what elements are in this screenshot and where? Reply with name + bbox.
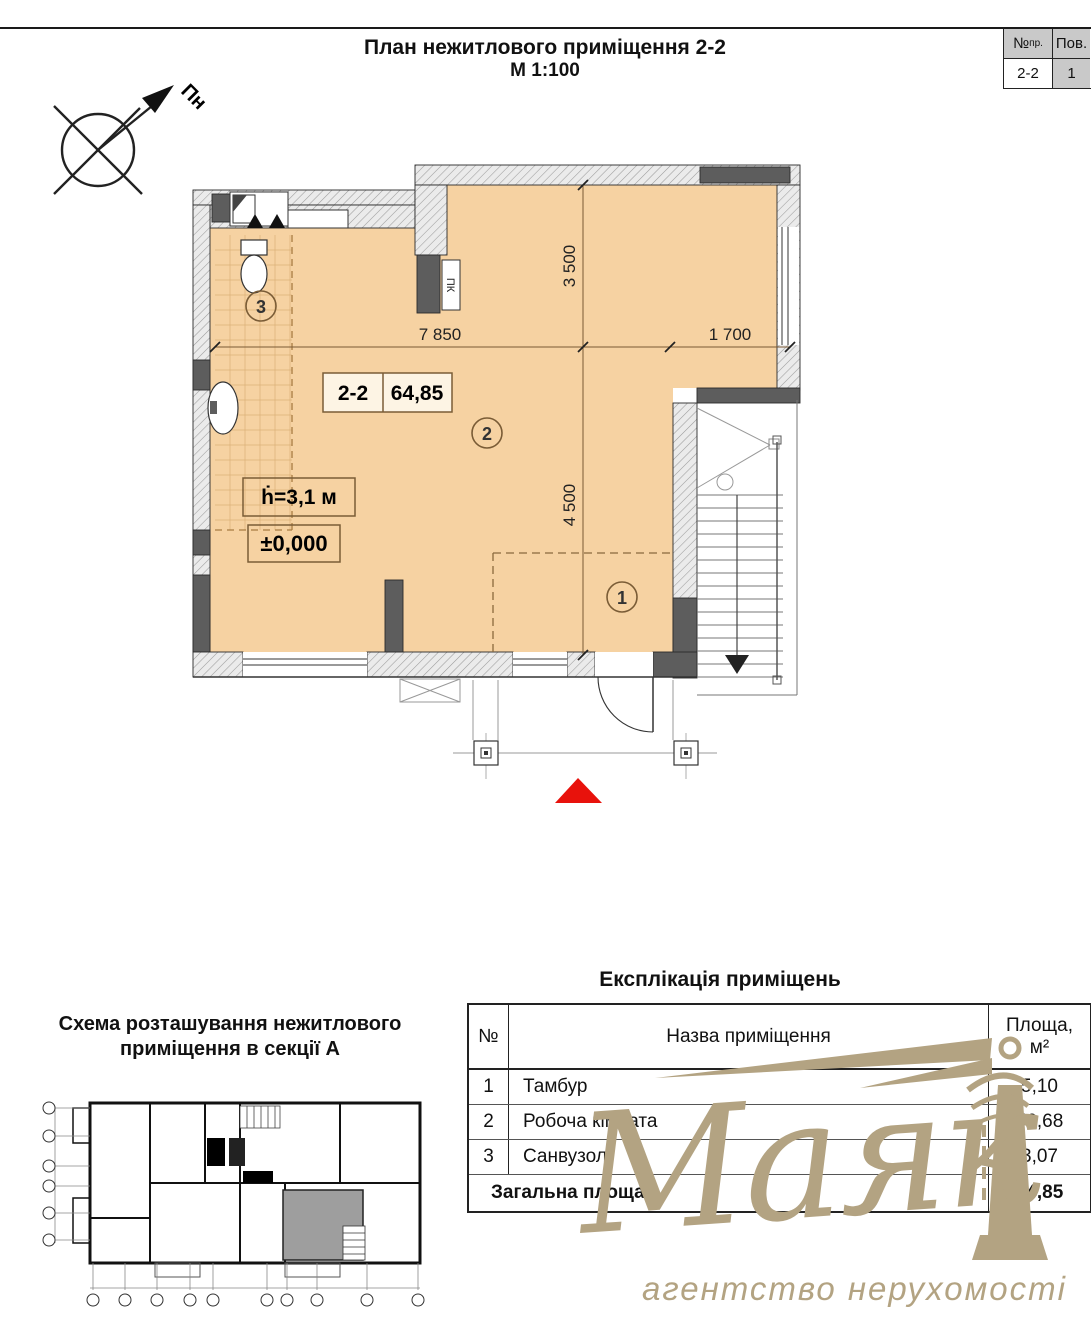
col-header-num: № (469, 1005, 509, 1068)
entrance-arrow-icon (555, 778, 602, 803)
sink-icon (208, 382, 238, 434)
ref-col-floor: Пов. (1053, 29, 1090, 59)
sheet-top-rule (0, 27, 1091, 29)
dim-4500: 4 500 (560, 484, 579, 527)
page-scale: М 1:100 (245, 60, 845, 82)
schema-title-line2: приміщення в секції А (25, 1037, 435, 1062)
ref-col-project-label: № (1013, 35, 1029, 52)
right-window (778, 227, 799, 345)
unit-info-box: 2-2 64,85 (323, 373, 452, 412)
porch-column (674, 733, 698, 779)
ref-col-project-sub: пр. (1029, 38, 1043, 49)
porch-column (474, 733, 498, 779)
dim-3500: 3 500 (560, 245, 579, 288)
watermark-brand: Маяк (573, 1062, 1043, 1259)
unit-number: 2-2 (338, 382, 368, 405)
floor-plan: ПК (185, 150, 825, 820)
vent-box (400, 679, 460, 702)
ref-project-value: 2-2 (1004, 59, 1053, 88)
schema-title-line1: Схема розташування нежитлового (25, 1012, 435, 1037)
ref-floor-value: 1 (1053, 59, 1090, 88)
toilet-icon (241, 240, 267, 293)
porch (453, 680, 717, 779)
row-num: 2 (469, 1105, 509, 1139)
plan-sheet: { "page_header": { "title": "План нежитл… (0, 0, 1091, 1321)
dim-1700: 1 700 (709, 325, 752, 344)
entry-door (598, 677, 653, 732)
room-number: 3 (256, 297, 266, 317)
room-number: 2 (482, 424, 492, 444)
stairwell (697, 400, 797, 695)
ceiling-height-label: ḣ=3,1 м (261, 486, 337, 509)
room-number: 1 (617, 588, 627, 608)
level-mark-label: ±0,000 (260, 531, 327, 556)
dim-7850: 7 850 (419, 325, 462, 344)
unit-area: 64,85 (391, 382, 444, 405)
row-num: 1 (469, 1070, 509, 1104)
stairs-direction-arrow (725, 655, 749, 674)
page-title: План нежитлового приміщення 2-2 (245, 36, 845, 60)
duct-label: ПК (444, 278, 456, 293)
watermark-subtitle: агентство нерухомості (642, 1270, 1067, 1308)
ref-col-project: №пр. (1004, 29, 1053, 59)
north-label: Пн (176, 80, 210, 114)
location-schema-plan (35, 1078, 430, 1318)
row-num: 3 (469, 1140, 509, 1174)
ref-table-value-row: 2-2 1 (1004, 59, 1091, 88)
explication-title: Експлікація приміщень (420, 968, 1020, 992)
ref-table-header-row: №пр. Пов. (1004, 29, 1091, 59)
schema-title: Схема розташування нежитлового приміщенн… (25, 1012, 435, 1062)
ref-table: №пр. Пов. 2-2 1 (1003, 27, 1091, 89)
